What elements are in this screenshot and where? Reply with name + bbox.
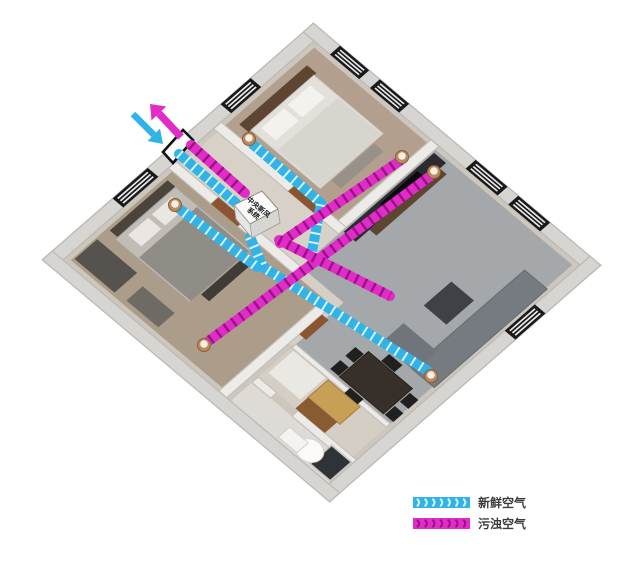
diffuser-fresh: [169, 199, 182, 212]
legend: 新鲜空气污浊空气: [413, 495, 526, 531]
diffuser-fresh: [425, 370, 438, 383]
ventilation-diagram: 中央新风 系统 新鲜空气污浊空气: [0, 0, 635, 576]
diffuser-exhaust: [396, 151, 409, 164]
diffuser-face: [398, 152, 406, 160]
diffuser-exhaust: [428, 166, 441, 179]
legend-label-fresh: 新鲜空气: [478, 495, 526, 510]
diffuser-face: [200, 340, 208, 348]
exhaust-air-out-arrow-shaft: [159, 113, 181, 137]
diffuser-face: [171, 200, 179, 208]
diffuser-face: [245, 134, 253, 142]
diffuser-face: [427, 371, 435, 379]
fresh-air-in-arrow-shaft: [133, 114, 154, 135]
legend-item-exhaust: 污浊空气: [413, 516, 526, 531]
diffuser-face: [430, 167, 438, 175]
diffuser-exhaust: [198, 339, 211, 352]
diagram-canvas: 中央新风 系统 新鲜空气污浊空气: [0, 0, 635, 576]
legend-item-fresh: 新鲜空气: [413, 495, 526, 510]
legend-label-exhaust: 污浊空气: [478, 516, 526, 531]
airflow-arrows: [133, 104, 181, 144]
diffuser-fresh: [243, 133, 256, 146]
